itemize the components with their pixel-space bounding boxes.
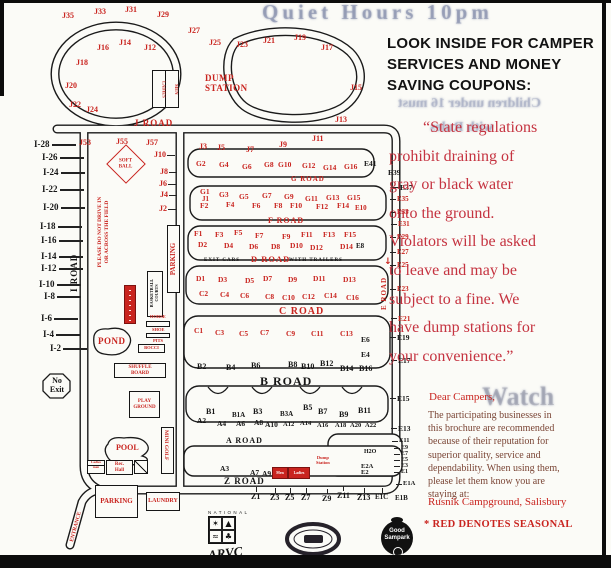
- arvc-cell-tree-icon: ♣: [222, 530, 235, 543]
- fmca-logo: [287, 524, 339, 554]
- quote-line: “State regulations: [389, 114, 603, 143]
- arvc-cell-star-icon: ✶: [209, 517, 222, 530]
- headline-line: SERVICES AND MONEY: [387, 54, 609, 75]
- quote-line: Violators will be asked: [389, 228, 603, 257]
- quote-line: to leave and may be: [389, 257, 603, 286]
- quote-line: onto the ground.: [389, 200, 603, 229]
- headline: LOOK INSIDE FOR CAMPERSERVICES AND MONEY…: [387, 33, 609, 96]
- headline-line: SAVING COUPONS:: [387, 75, 609, 96]
- dear-campers-line: The participating businesses in: [428, 409, 600, 422]
- dear-campers-line: because of their reputation for: [428, 435, 600, 448]
- quote-line: gray or black water: [389, 171, 603, 200]
- scan-edge-right: [602, 0, 606, 568]
- dear-campers-line: superior quality, service and: [428, 449, 600, 462]
- seasonal-legend: * RED DENOTES SEASONAL: [424, 519, 573, 530]
- arvc-cell-waves-icon: ≈: [209, 530, 222, 543]
- quote-line: have dump stations for: [389, 314, 603, 343]
- dear-campers-line: this brochure are recommended: [428, 422, 600, 435]
- dear-campers-body: The participating businesses inthis broc…: [428, 409, 600, 501]
- arvc-logo: NATIONAL ✶ ▲ ≈ ♣ ARVC: [208, 510, 249, 561]
- regulations-quote: “State regulationsprohibit draining ofgr…: [389, 114, 603, 371]
- quote-line: your convenience.”: [389, 343, 603, 372]
- arvc-national-label: NATIONAL: [208, 510, 249, 515]
- dear-campers-line: dependability. When using them,: [428, 462, 600, 475]
- scan-edge-left: [0, 0, 4, 96]
- scan-edge-top: [0, 0, 611, 3]
- good-sam-line2: Sampark: [381, 535, 413, 542]
- arvc-grid-icon: ✶ ▲ ≈ ♣: [208, 516, 236, 544]
- quote-line: prohibit draining of: [389, 143, 603, 172]
- campground-signature: Rusnik Campground, Salisbury: [428, 496, 566, 508]
- good-sam-park-logo: Good Sampark: [381, 517, 413, 557]
- arvc-cell-mountain-icon: ▲: [222, 517, 235, 530]
- campground-map-page: Quiet Hours 10pm Children under 16 must …: [0, 0, 611, 568]
- scan-edge-bottom: [0, 555, 611, 568]
- quote-line: subject to a fine. We: [389, 286, 603, 315]
- dear-campers-salutation: Dear Campers,: [429, 391, 495, 403]
- headline-line: LOOK INSIDE FOR CAMPER: [387, 33, 609, 54]
- dear-campers-line: please let them know you are: [428, 475, 600, 488]
